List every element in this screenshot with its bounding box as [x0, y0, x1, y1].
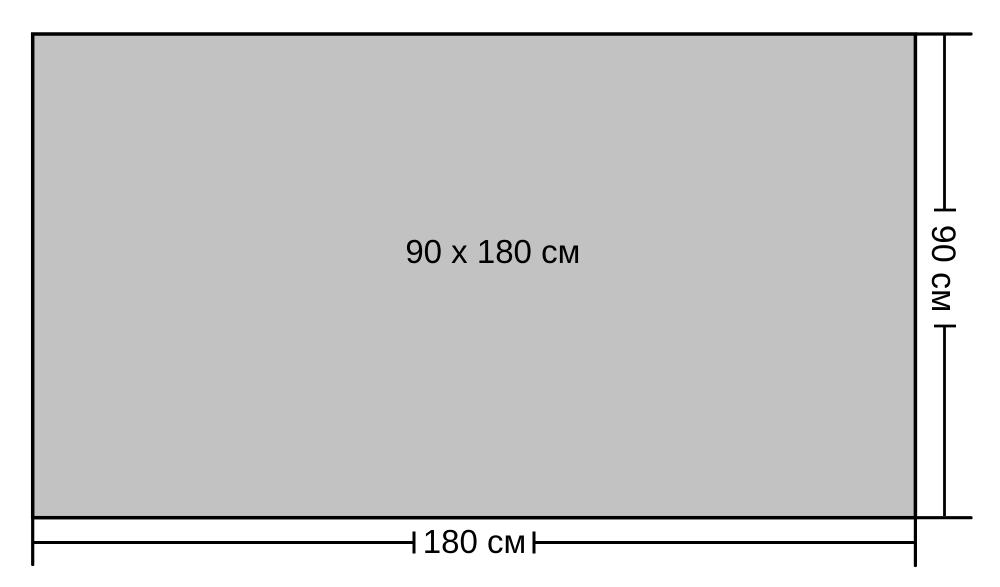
svg-text:90 см: 90 см: [924, 225, 962, 313]
svg-text:90 x 180 см: 90 x 180 см: [405, 233, 580, 270]
svg-text:180 см: 180 см: [423, 523, 526, 560]
